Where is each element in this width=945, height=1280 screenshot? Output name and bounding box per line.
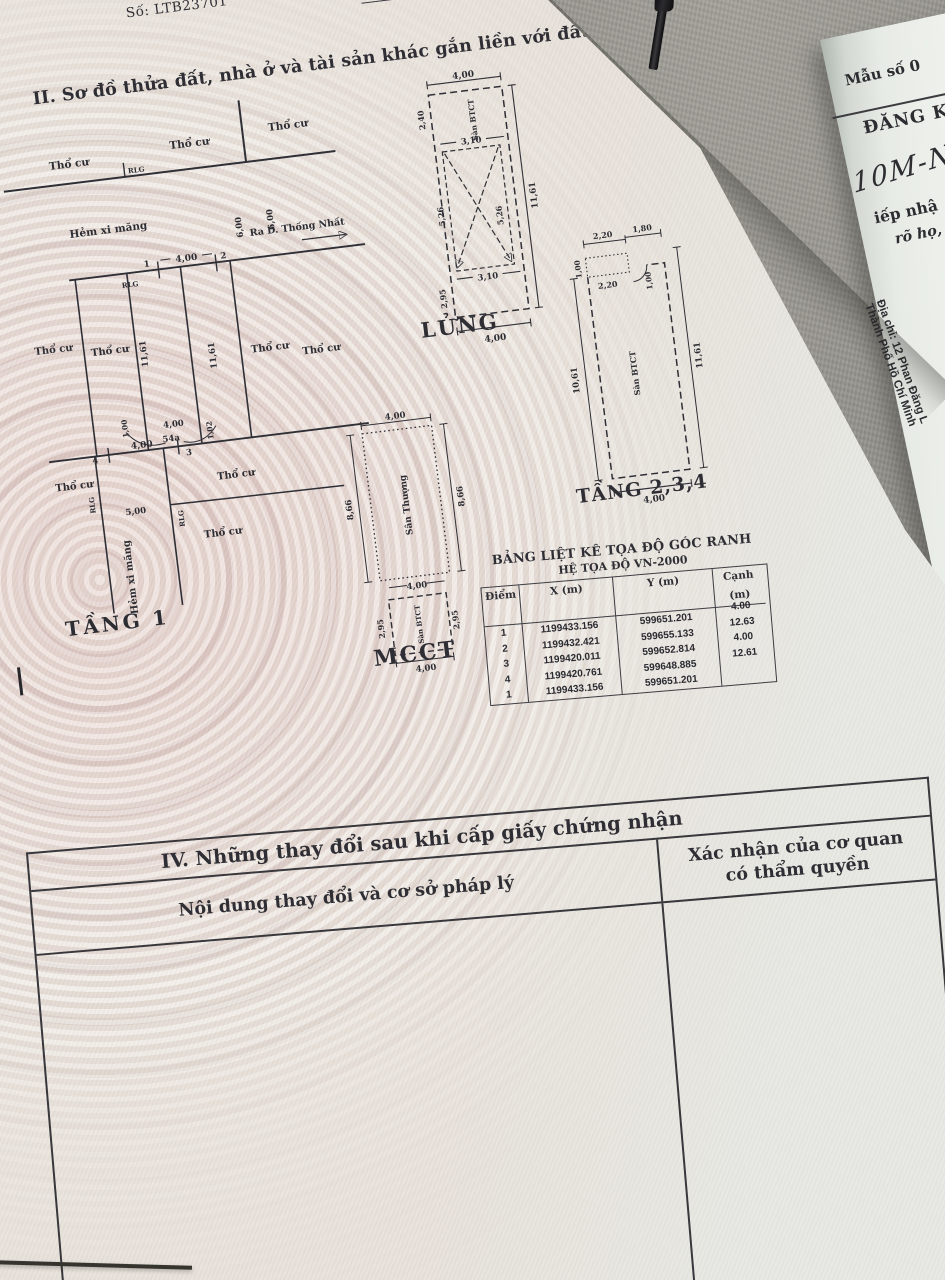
- form-number: Mẫu số 0: [843, 56, 922, 90]
- handwritten-note: 10M-N: [851, 138, 945, 200]
- col-header: Điểm: [481, 585, 521, 627]
- land-certificate-photo: Mẫu số 0 ĐĂNG K 10M-N iếp nhậ rõ họ, Địa…: [0, 0, 945, 1280]
- cell-point: 1: [490, 686, 528, 705]
- empty-cell-confirm: [661, 880, 945, 1280]
- cell-edge: [720, 665, 772, 685]
- section4-table: IV. Những thay đổi sau khi cấp giấy chứn…: [26, 777, 945, 1280]
- coordinate-table: Điểm X (m) Y (m) Cạnh (m) 1 1199433.156 …: [480, 563, 777, 705]
- form-text-line: rõ họ,: [893, 221, 943, 248]
- coordinate-table-block: BẢNG LIỆT KÊ TỌA ĐỘ GÓC RANH HỆ TỌA ĐỘ V…: [478, 531, 778, 706]
- form-heading: ĐĂNG K: [861, 101, 945, 139]
- empty-cell-content: [37, 903, 701, 1280]
